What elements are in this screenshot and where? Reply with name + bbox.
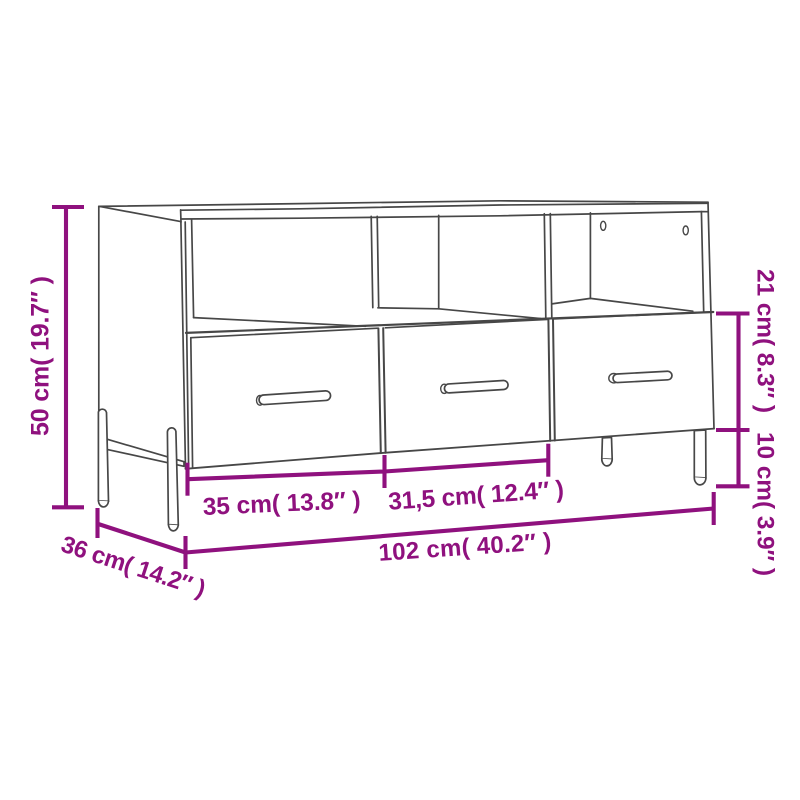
svg-text:10 cm( 3.9″ ): 10 cm( 3.9″ ) (752, 432, 779, 576)
svg-text:21 cm( 8.3″ ): 21 cm( 8.3″ ) (752, 269, 779, 413)
svg-text:50 cm( 19.7″ ): 50 cm( 19.7″ ) (27, 276, 55, 436)
